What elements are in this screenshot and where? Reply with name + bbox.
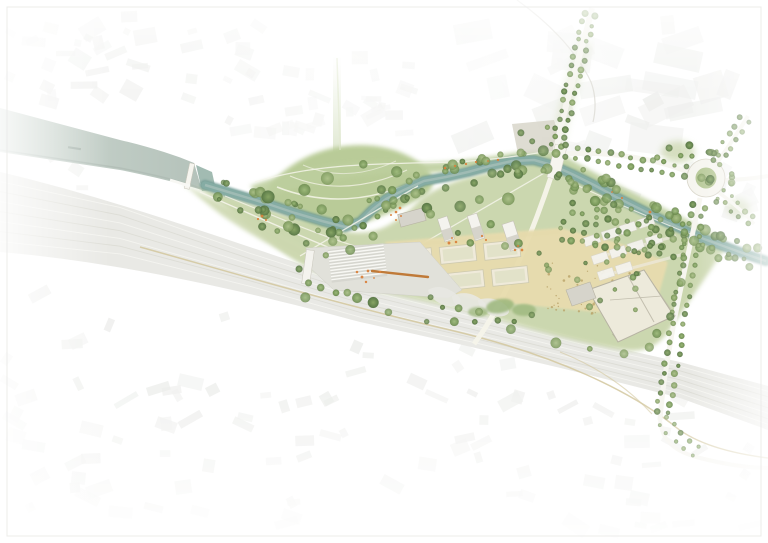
tree	[558, 226, 562, 230]
tree	[368, 297, 379, 308]
tree	[561, 135, 567, 141]
tree	[593, 243, 598, 248]
tree	[300, 292, 310, 302]
tree	[501, 242, 509, 250]
tree	[684, 164, 690, 170]
fade-right	[690, 0, 768, 543]
tree	[684, 303, 689, 308]
tree	[590, 196, 600, 206]
orange-furniture-dot	[265, 219, 267, 221]
orange-furniture-dot	[365, 281, 367, 283]
tree	[544, 263, 549, 268]
tree	[562, 126, 569, 133]
tree	[575, 145, 581, 151]
orange-furniture-dot	[400, 215, 402, 217]
tree	[635, 221, 641, 227]
tree	[560, 109, 564, 113]
tree	[391, 166, 402, 177]
tree	[545, 125, 550, 130]
tree	[495, 317, 501, 323]
tree	[455, 230, 461, 236]
grove-dot	[555, 295, 557, 297]
tree	[583, 261, 587, 265]
tree	[448, 159, 458, 169]
tree	[223, 180, 230, 187]
tree	[602, 193, 612, 203]
orange-furniture-dot	[521, 249, 524, 252]
tree	[666, 330, 672, 336]
tree	[681, 229, 688, 236]
tree	[670, 254, 676, 260]
tree	[359, 160, 367, 168]
tree	[620, 349, 629, 358]
grove-dot	[552, 263, 553, 264]
tree	[517, 149, 525, 157]
orange-furniture-dot	[621, 197, 623, 199]
tree	[298, 204, 303, 209]
tree	[573, 156, 578, 161]
orange-furniture-dot	[356, 271, 359, 274]
fade-bottom	[0, 390, 768, 543]
tree	[626, 246, 632, 252]
tree	[321, 172, 334, 185]
orange-furniture-dot	[448, 242, 451, 245]
tree	[569, 200, 575, 206]
grove-dot	[581, 279, 583, 281]
orange-furniture-dot	[475, 161, 477, 163]
tree	[557, 117, 562, 122]
orange-furniture-dot	[481, 235, 483, 237]
tree	[570, 228, 576, 234]
tree	[612, 218, 620, 226]
tree	[613, 287, 617, 291]
tree	[671, 295, 677, 301]
tree	[475, 308, 483, 316]
tree	[602, 174, 611, 183]
tree	[537, 251, 542, 256]
tree	[406, 178, 413, 185]
tree	[560, 97, 566, 103]
tree	[671, 321, 676, 326]
tree	[649, 168, 654, 173]
tree	[681, 173, 688, 180]
tree	[645, 343, 654, 352]
tree	[596, 159, 601, 164]
tree	[506, 324, 516, 334]
tree	[618, 151, 624, 157]
tree	[657, 233, 662, 238]
tree	[388, 186, 396, 194]
tree	[567, 179, 574, 186]
tree	[581, 167, 586, 172]
tree	[681, 237, 687, 243]
tree	[556, 171, 563, 178]
grove-dot	[547, 286, 549, 288]
tree	[669, 227, 674, 232]
tree	[367, 198, 372, 203]
tree	[467, 239, 474, 246]
grove-dot	[563, 309, 565, 311]
tree	[651, 202, 662, 213]
tree	[680, 221, 685, 226]
tree	[581, 230, 587, 236]
tree	[669, 172, 675, 178]
tree	[517, 129, 524, 136]
orange-furniture-dot	[517, 245, 519, 247]
tree	[455, 201, 466, 212]
tree	[615, 207, 621, 213]
tree	[600, 207, 607, 214]
orange-furniture-dot	[649, 211, 652, 214]
tree	[289, 214, 295, 220]
grove-dot	[547, 308, 548, 309]
tree	[455, 305, 463, 313]
tree	[352, 293, 362, 303]
orange-furniture-dot	[395, 219, 397, 221]
tree	[344, 289, 351, 296]
tree	[296, 265, 303, 272]
tree	[328, 237, 337, 246]
orange-furniture-dot	[451, 237, 453, 239]
tree	[658, 244, 664, 250]
tree	[285, 199, 292, 206]
tree	[237, 207, 243, 213]
tree	[442, 184, 450, 192]
tree	[676, 364, 680, 368]
tree	[658, 379, 664, 385]
tree	[594, 207, 600, 213]
grove-dot	[558, 298, 559, 299]
tree	[679, 333, 685, 339]
tree	[662, 371, 667, 376]
tree	[677, 351, 683, 357]
tree	[541, 168, 547, 174]
orange-furniture-dot	[465, 163, 467, 165]
tree	[632, 286, 638, 292]
tree	[352, 225, 358, 231]
grove-dot	[587, 271, 588, 272]
tree	[569, 210, 575, 216]
orange-furniture-dot	[514, 249, 516, 251]
grove-dot	[563, 279, 566, 282]
tree	[661, 361, 667, 367]
tree	[561, 219, 567, 225]
tree	[608, 149, 615, 156]
tree	[628, 163, 635, 170]
tree	[665, 211, 673, 219]
tree	[680, 262, 686, 268]
tree	[332, 216, 339, 223]
tree	[594, 233, 600, 239]
tree	[262, 190, 275, 203]
tree	[604, 233, 610, 239]
orange-furniture-dot	[399, 207, 402, 210]
tree	[369, 232, 378, 241]
tree	[604, 215, 611, 222]
tree	[317, 204, 327, 214]
tree	[413, 172, 420, 179]
orange-furniture-dot	[497, 159, 499, 161]
tree	[628, 155, 633, 160]
tree	[677, 278, 686, 287]
tree	[450, 317, 459, 326]
tree	[601, 243, 609, 251]
tree	[625, 219, 630, 224]
grove-dot	[628, 272, 630, 274]
orange-furniture-dot	[611, 191, 613, 193]
orange-furniture-dot	[261, 215, 264, 218]
tree	[593, 222, 599, 228]
tree	[298, 184, 310, 196]
grove-dot	[553, 305, 554, 306]
tree	[647, 243, 653, 249]
tree	[497, 151, 503, 157]
tree	[671, 382, 677, 388]
tree	[680, 255, 687, 262]
tree	[515, 168, 521, 174]
tree	[258, 223, 266, 231]
tree	[652, 329, 661, 338]
tree	[538, 145, 549, 156]
tree	[374, 196, 380, 202]
tree	[562, 142, 569, 149]
grove-dot	[578, 310, 580, 312]
tree	[552, 149, 561, 158]
tree	[315, 228, 321, 234]
tree	[255, 206, 262, 213]
tree	[345, 245, 355, 255]
tree	[424, 319, 429, 324]
tree	[562, 154, 568, 160]
orange-furniture-dot	[390, 214, 392, 216]
tree	[612, 185, 621, 194]
grove-dot	[548, 273, 551, 276]
orange-furniture-dot	[257, 218, 259, 220]
tree	[566, 118, 571, 123]
masterplan-canvas	[0, 0, 768, 543]
tree	[633, 307, 638, 312]
orange-furniture-dot	[454, 165, 456, 167]
tree	[666, 313, 674, 321]
fade-top	[0, 0, 768, 95]
tree	[411, 188, 421, 198]
tree	[647, 215, 652, 220]
tree	[580, 211, 585, 216]
tree	[317, 284, 324, 291]
tree	[580, 238, 585, 243]
tree	[275, 228, 281, 234]
tree	[377, 185, 386, 194]
tree	[654, 155, 660, 161]
tree	[623, 229, 630, 236]
tree	[405, 195, 410, 200]
grove-dot	[581, 304, 582, 305]
orange-furniture-dot	[455, 241, 458, 244]
orange-furniture-dot	[367, 270, 370, 273]
tree	[549, 142, 553, 146]
tree	[305, 279, 312, 286]
tree	[672, 302, 677, 307]
tree	[529, 138, 535, 144]
tree	[574, 277, 580, 283]
tree	[596, 148, 602, 154]
tree	[594, 215, 599, 220]
masterplan-svg	[0, 0, 768, 543]
grove-dot	[551, 306, 553, 308]
tree	[303, 240, 310, 247]
tree	[616, 163, 621, 168]
tree	[597, 298, 603, 304]
tree	[381, 201, 391, 211]
tree	[678, 153, 683, 158]
tree	[670, 235, 677, 242]
tree	[664, 349, 671, 356]
tree	[647, 231, 653, 237]
tree	[583, 185, 591, 193]
grove-dot	[576, 284, 578, 286]
tree	[605, 160, 610, 165]
tree	[529, 312, 535, 318]
tree	[614, 244, 621, 251]
tree	[680, 322, 685, 327]
tree	[502, 193, 514, 205]
orange-furniture-dot	[444, 167, 447, 170]
grove-dot	[550, 288, 551, 289]
tree	[658, 217, 664, 223]
grove-dot	[555, 309, 557, 311]
grove-dot	[558, 306, 559, 307]
tree	[552, 126, 557, 131]
tree	[667, 340, 673, 346]
tree	[656, 251, 662, 257]
orange-furniture-dot	[395, 211, 398, 214]
tree	[326, 227, 337, 238]
tree	[375, 214, 381, 220]
tree	[283, 221, 294, 232]
grandstand-steps	[328, 243, 388, 283]
tree	[679, 342, 685, 348]
tree	[552, 134, 557, 139]
tree	[472, 319, 478, 325]
tree	[672, 163, 676, 167]
tree	[587, 346, 593, 352]
tree	[679, 245, 684, 250]
tree	[620, 253, 625, 258]
tree	[470, 179, 477, 186]
tree	[567, 237, 574, 244]
fade-left	[0, 0, 110, 543]
tree	[631, 248, 637, 254]
tree	[638, 167, 643, 172]
tree	[426, 210, 435, 219]
grove-dot	[591, 312, 594, 315]
tree	[666, 145, 673, 152]
tree	[585, 147, 591, 153]
tree	[440, 305, 445, 310]
tree	[551, 338, 562, 349]
tree	[487, 220, 495, 228]
tree	[640, 157, 647, 164]
tree	[582, 220, 589, 227]
tree	[428, 294, 434, 300]
grove-dot	[568, 275, 571, 278]
tree	[682, 311, 688, 317]
tree	[503, 165, 511, 173]
tree	[569, 110, 575, 116]
tree	[671, 370, 678, 377]
tree	[615, 228, 621, 234]
tree	[487, 169, 496, 178]
tree	[323, 252, 329, 258]
tree	[610, 201, 617, 208]
tree	[385, 309, 392, 316]
grove-dot	[594, 278, 595, 279]
tree	[343, 215, 354, 226]
tree	[291, 201, 296, 206]
tree	[333, 290, 340, 297]
tree	[497, 170, 504, 177]
orange-furniture-dot	[485, 239, 487, 241]
tree	[569, 100, 575, 106]
tree	[614, 239, 619, 244]
tree	[629, 207, 634, 212]
grove-dot	[597, 265, 599, 267]
tree	[659, 170, 664, 175]
grove-dot	[595, 312, 596, 313]
orange-furniture-dot	[361, 276, 364, 279]
tree	[648, 224, 654, 230]
orange-furniture-dot	[379, 271, 381, 273]
orange-furniture-dot	[373, 277, 375, 279]
tree	[460, 159, 466, 165]
tree	[559, 237, 565, 243]
grove-dot	[557, 302, 559, 304]
tree	[661, 159, 666, 164]
tree	[512, 319, 517, 324]
tree	[677, 271, 682, 276]
tree	[475, 195, 484, 204]
orange-furniture-dot	[487, 160, 489, 162]
tree	[634, 271, 639, 276]
tree	[673, 290, 678, 295]
tree	[584, 155, 591, 162]
tree	[604, 259, 609, 264]
tree	[359, 222, 366, 229]
tree	[586, 303, 593, 310]
tree	[217, 197, 221, 201]
tree	[642, 247, 648, 253]
